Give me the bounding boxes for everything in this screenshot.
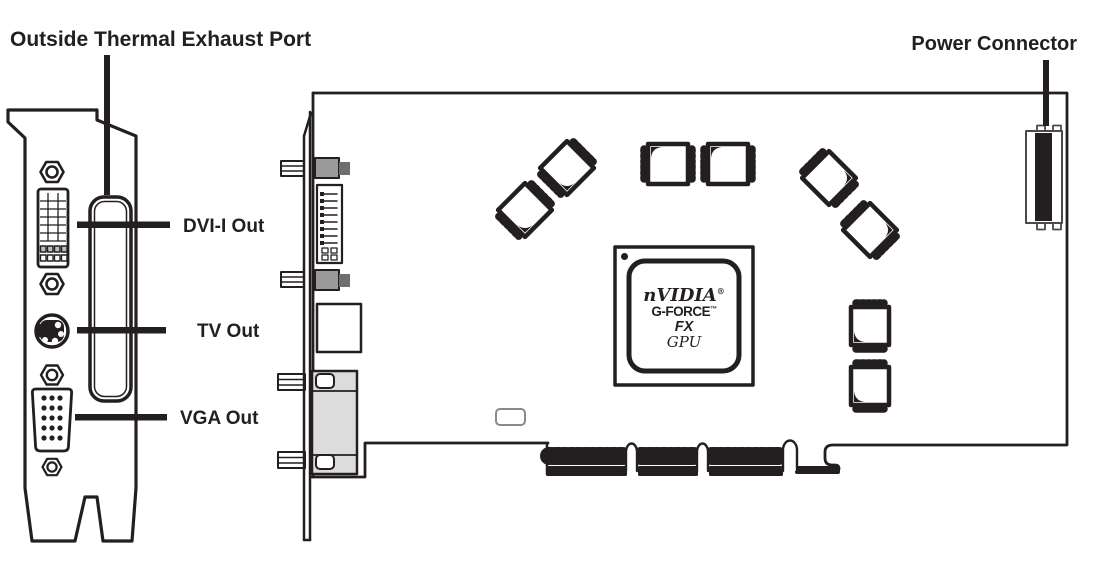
memory-chip-4	[704, 144, 752, 184]
dvi-connector-side	[315, 158, 350, 290]
vga-out-label: VGA Out	[180, 408, 259, 429]
vga-leader-line	[75, 414, 167, 421]
memory-chip-6	[840, 200, 899, 259]
tv-out-label: TV Out	[197, 321, 260, 342]
bios-chip	[496, 409, 525, 425]
svg-text:nVIDIA®: nVIDIA®	[643, 285, 724, 306]
bracket-side	[304, 112, 311, 540]
power-connector-label: Power Connector	[911, 33, 1077, 55]
gpu-brand: nVIDIA	[643, 285, 717, 306]
gpu-model: G-FORCE	[651, 304, 710, 319]
callouts: Outside Thermal Exhaust Port DVI-I Out T…	[10, 28, 1077, 429]
dvi-out-label: DVI-I Out	[183, 216, 265, 237]
gpu-chip: nVIDIA® G-FORCE™ FX GPU	[615, 247, 753, 385]
gpu-unit: GPU	[667, 333, 703, 351]
pcb: nVIDIA® G-FORCE™ FX GPU	[278, 93, 1067, 540]
agp-edge-connector	[546, 441, 840, 477]
tv-connector-side	[317, 304, 361, 352]
memory-chip-2	[495, 180, 554, 239]
bracket-front	[8, 110, 136, 541]
memory-chip-5	[799, 148, 858, 207]
graphics-card-diagram: nVIDIA® G-FORCE™ FX GPU	[0, 0, 1094, 570]
power-connector	[1026, 126, 1062, 230]
thermal-leader-line	[104, 55, 110, 195]
power-leader-line	[1043, 60, 1049, 126]
memory-chip-7	[851, 303, 889, 349]
memory-chip-3	[644, 144, 692, 184]
memory-chip-1	[537, 138, 596, 197]
diagram-canvas: nVIDIA® G-FORCE™ FX GPU	[0, 0, 1094, 570]
dvi-leader-line	[77, 222, 170, 229]
gpu-pin1-dot	[621, 253, 628, 260]
vga-connector-front	[32, 389, 71, 451]
vga-connector-side	[312, 371, 357, 474]
gpu-model-mark: ™	[710, 306, 717, 313]
thermal-exhaust-label: Outside Thermal Exhaust Port	[10, 28, 311, 51]
screw-posts	[278, 161, 305, 468]
memory-chip-8	[851, 363, 889, 409]
svg-text:G-FORCE™: G-FORCE™	[651, 304, 716, 319]
tv-leader-line	[77, 327, 166, 334]
gpu-brand-mark: ®	[717, 286, 725, 296]
